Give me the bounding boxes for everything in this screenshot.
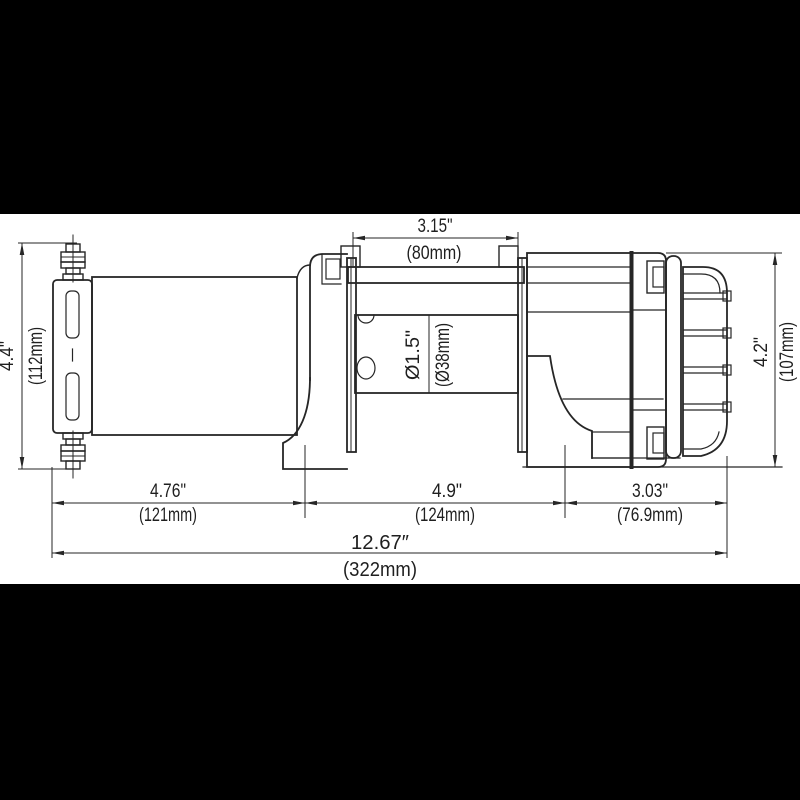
dim-bolt-spacing-mm: (124mm) — [415, 505, 475, 526]
drawing-svg: 3.15" (80mm) 4.4" (112mm) Ø1.5" (Ø38mm) … — [0, 0, 800, 800]
dim-gearbox-length-in: 3.03" — [632, 481, 668, 502]
dim-drum-width-in: 3.15" — [418, 216, 453, 237]
dim-gearbox-length-mm: (76.9mm) — [617, 505, 683, 526]
dim-motor-length-mm: (121mm) — [139, 505, 197, 526]
letterbox-bottom — [0, 584, 800, 800]
dim-drum-diameter-in: Ø1.5" — [403, 330, 424, 380]
dim-overall-length-in: 12.67″ — [351, 532, 409, 554]
dim-drum-diameter-mm: (Ø38mm) — [433, 323, 454, 387]
dim-motor-height-mm: (112mm) — [26, 327, 47, 385]
dim-gearbox-height-mm: (107mm) — [777, 322, 798, 382]
paper-area — [0, 214, 800, 584]
dim-drum-width-mm: (80mm) — [407, 243, 462, 264]
winch-dimension-drawing: 3.15" (80mm) 4.4" (112mm) Ø1.5" (Ø38mm) … — [0, 0, 800, 800]
dim-overall-length-mm: (322mm) — [343, 559, 417, 581]
dim-motor-height-in: 4.4" — [0, 341, 18, 371]
dim-bolt-spacing-in: 4.9" — [432, 481, 462, 502]
dim-gearbox-height-in: 4.2" — [751, 337, 772, 367]
dim-motor-length-in: 4.76" — [150, 481, 186, 502]
letterbox-top — [0, 0, 800, 214]
